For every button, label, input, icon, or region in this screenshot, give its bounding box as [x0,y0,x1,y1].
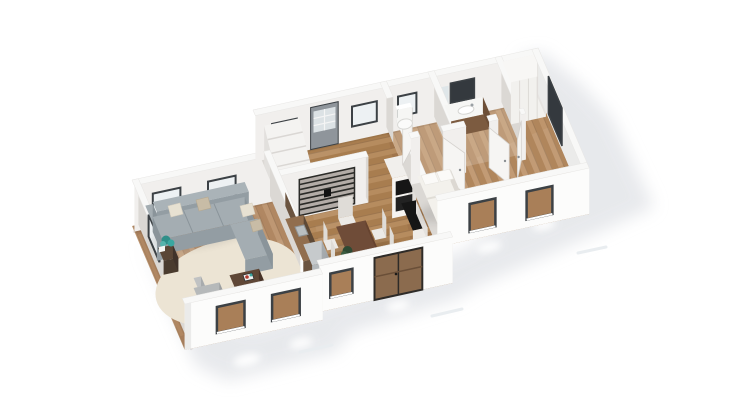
table-decor-red [245,275,249,279]
glazed-double-door [375,248,423,300]
toilet[interactable] [396,103,414,131]
bathroom-window [450,78,474,103]
seg-d-face [521,114,526,161]
corner-face [185,303,191,350]
table-decor-teal [250,274,253,277]
hall-window-right [352,101,377,126]
glazed-door-handle [395,273,398,276]
chair-back [338,195,353,218]
floorplan-render-canvas[interactable]: 3D isometric floor plan rendering of a s… [0,0,750,400]
wall-end-face [366,151,368,203]
floorplan-3d-scene[interactable] [0,0,750,400]
screen-latch [324,189,331,198]
vanity-faucet [471,104,474,107]
front-door [311,102,339,150]
